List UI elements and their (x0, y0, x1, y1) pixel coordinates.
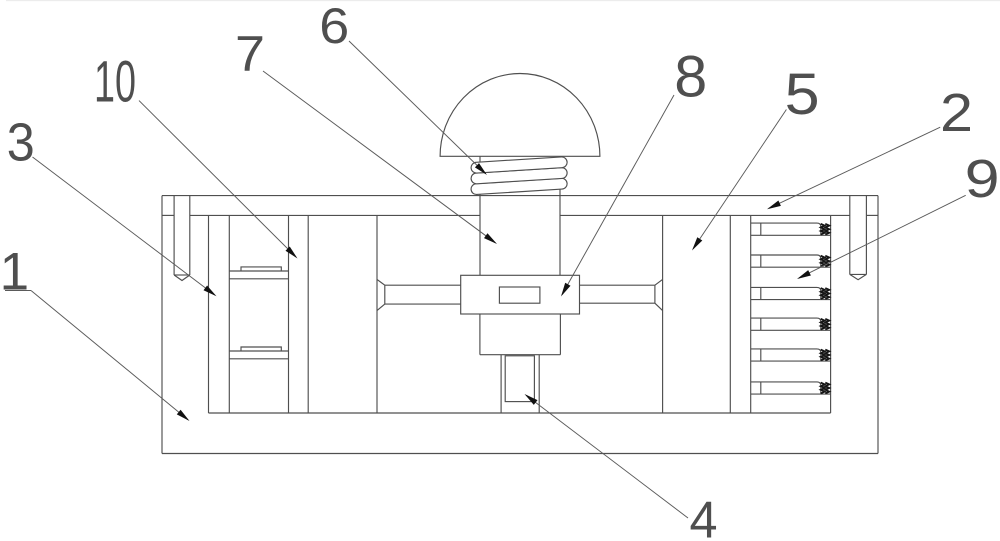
svg-text:7: 7 (235, 26, 265, 82)
svg-text:4: 4 (690, 492, 718, 541)
svg-text:9: 9 (965, 149, 1000, 209)
svg-text:2: 2 (940, 83, 973, 143)
svg-text:10: 10 (94, 50, 136, 115)
svg-text:3: 3 (7, 113, 35, 173)
svg-text:8: 8 (674, 44, 707, 109)
svg-text:1: 1 (0, 243, 29, 302)
svg-text:6: 6 (319, 0, 349, 54)
svg-text:5: 5 (785, 62, 820, 127)
